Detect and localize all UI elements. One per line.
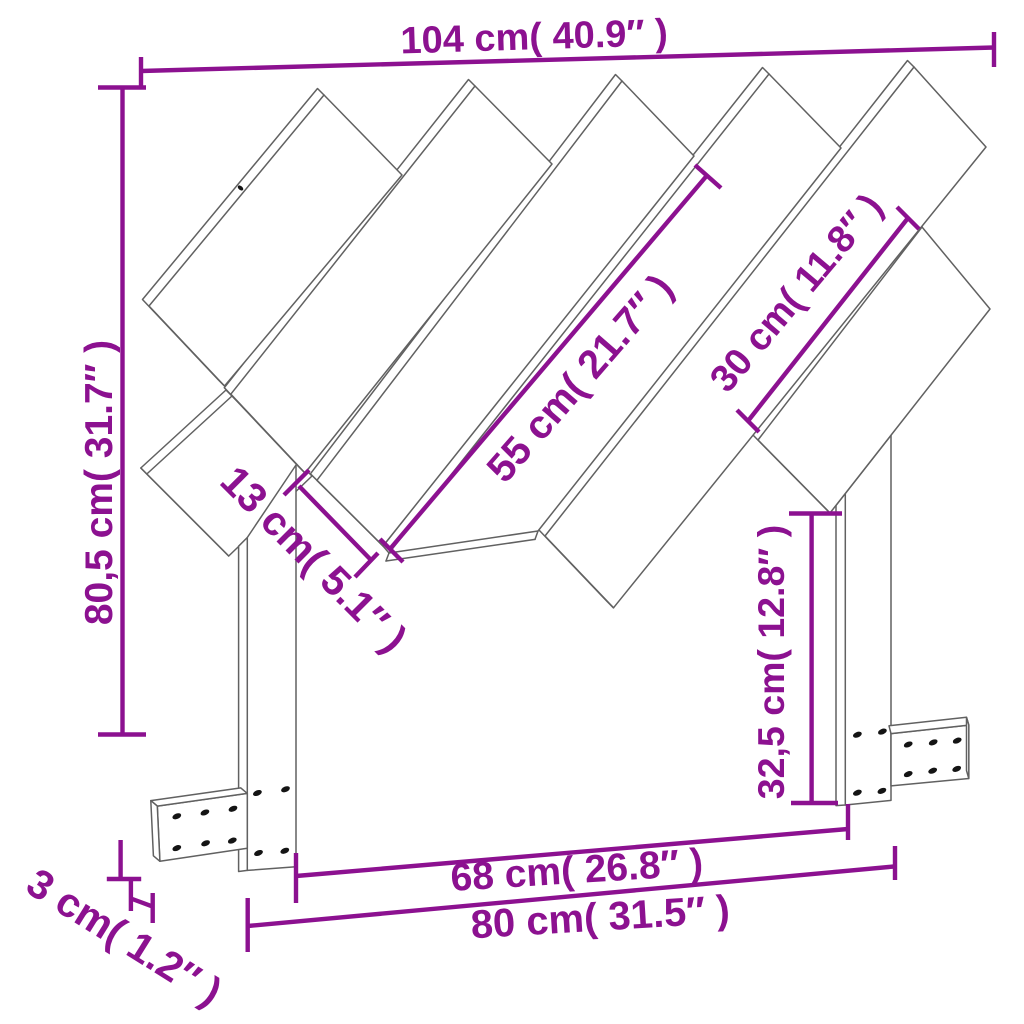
- svg-text:32,5 cm( 12.8″ ): 32,5 cm( 12.8″ ): [750, 525, 792, 799]
- svg-text:80,5 cm( 31.7″ ): 80,5 cm( 31.7″ ): [78, 340, 121, 625]
- svg-text:104 cm( 40.9″ ): 104 cm( 40.9″ ): [400, 12, 669, 62]
